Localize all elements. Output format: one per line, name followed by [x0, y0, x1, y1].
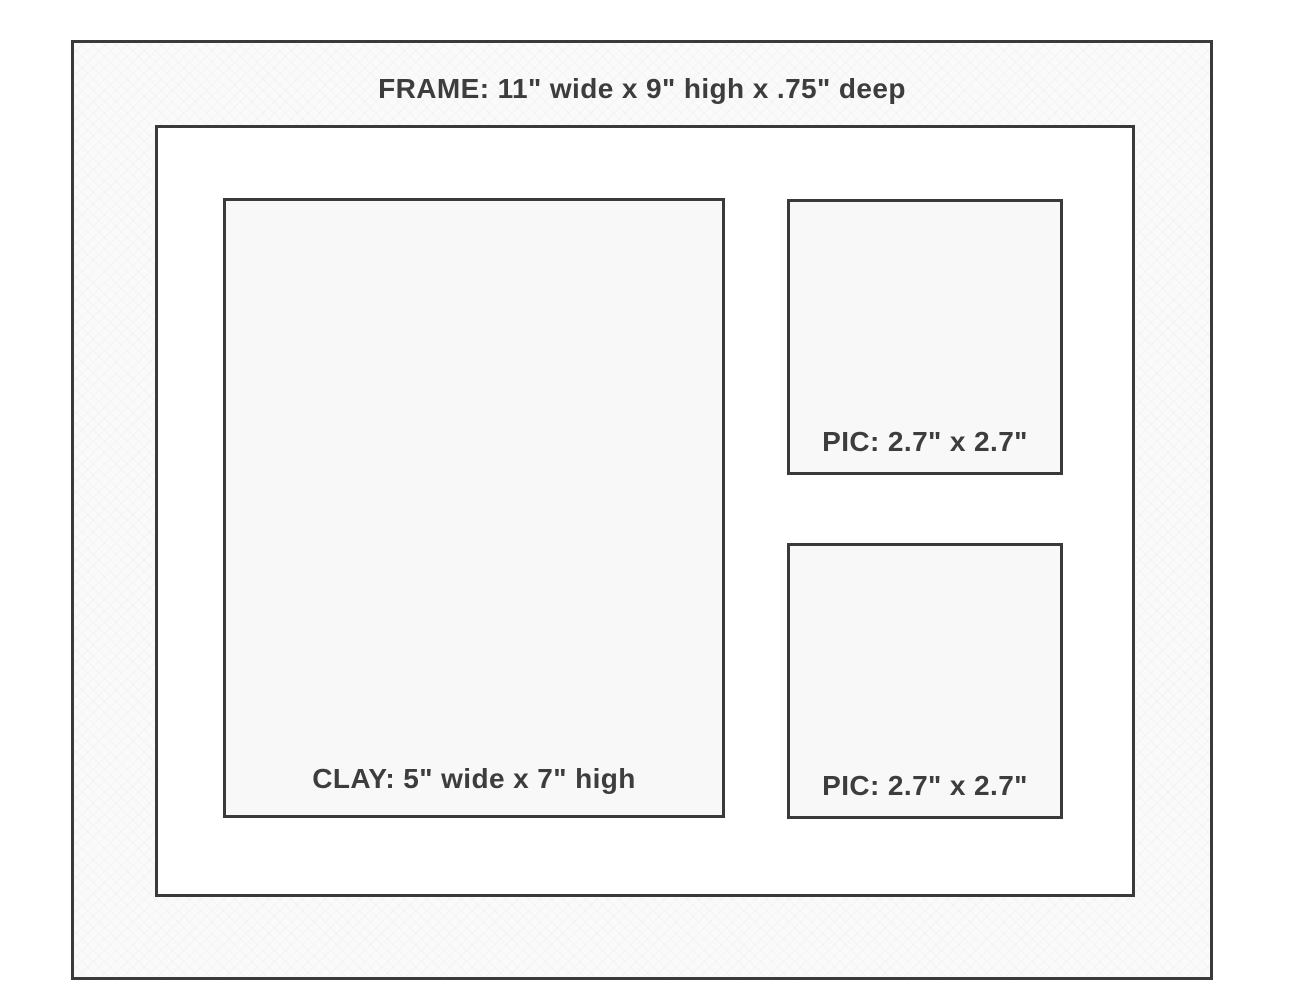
pic-opening-bottom: PIC: 2.7" x 2.7"	[787, 543, 1063, 819]
pic-opening-top: PIC: 2.7" x 2.7"	[787, 199, 1063, 475]
mat-outline: CLAY: 5" wide x 7" high PIC: 2.7" x 2.7"…	[155, 125, 1135, 897]
clay-opening: CLAY: 5" wide x 7" high	[223, 198, 725, 818]
pic-top-dimensions-label: PIC: 2.7" x 2.7"	[822, 426, 1028, 458]
frame-outline: FRAME: 11" wide x 9" high x .75" deep CL…	[71, 40, 1213, 980]
pic-bottom-dimensions-label: PIC: 2.7" x 2.7"	[822, 770, 1028, 802]
frame-dimensions-label: FRAME: 11" wide x 9" high x .75" deep	[74, 73, 1210, 105]
frame-layout-diagram: FRAME: 11" wide x 9" high x .75" deep CL…	[0, 0, 1300, 1000]
clay-dimensions-label: CLAY: 5" wide x 7" high	[312, 763, 636, 795]
